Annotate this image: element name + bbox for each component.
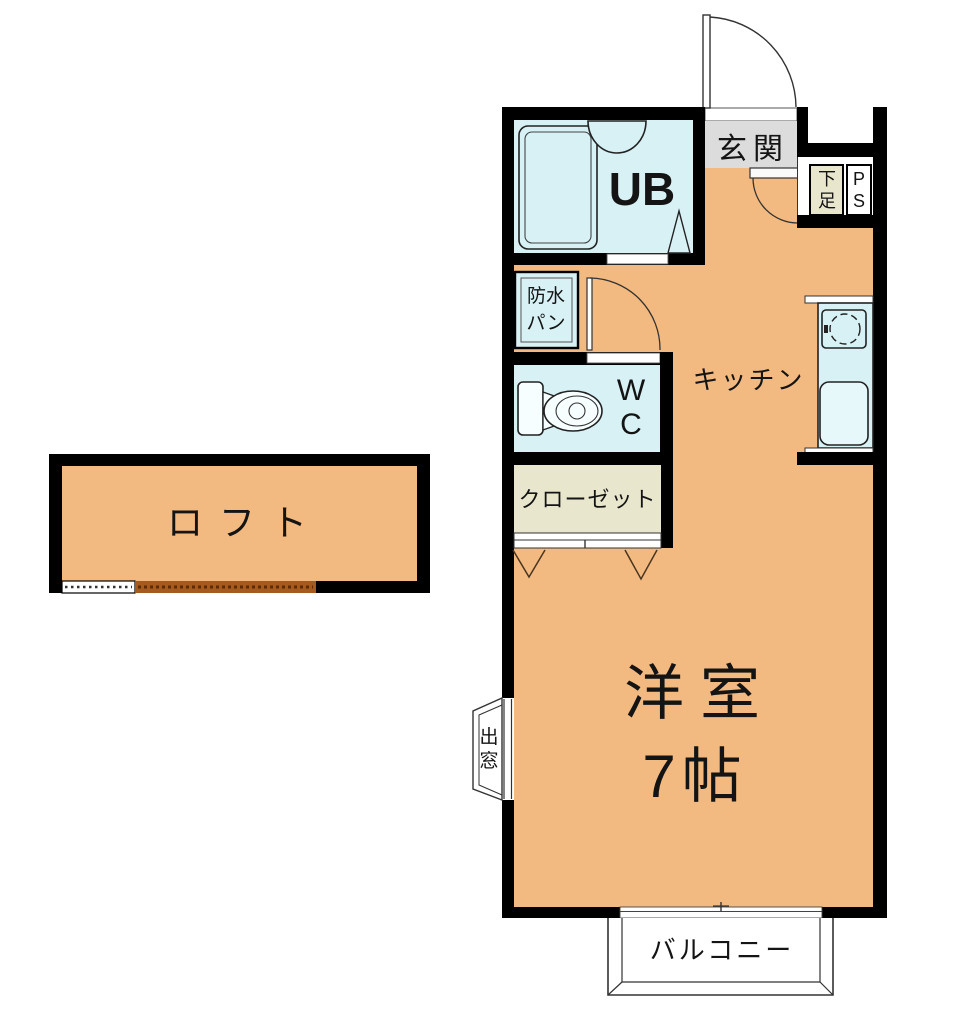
right-wall <box>873 107 887 918</box>
bath-door-threshold <box>607 254 668 264</box>
entrance-threshold <box>705 108 797 121</box>
entrance-door-swing-arc <box>710 17 796 107</box>
pipe-space-label: PS <box>851 167 867 213</box>
kitchen-counter-top-lip <box>805 296 873 303</box>
balcony-label: バルコニー <box>638 931 806 965</box>
bathtub <box>519 126 597 249</box>
toilet-door-threshold <box>587 353 660 363</box>
shoe-cabinet-label: 下足 <box>817 167 837 213</box>
western-room-size-label: 7帖 <box>597 735 787 807</box>
toilet-door-leaf <box>587 278 592 350</box>
toilet-bowl <box>544 391 602 431</box>
stove-knob <box>824 325 828 333</box>
kitchen-sink <box>820 382 868 445</box>
entrance-step <box>750 168 798 178</box>
loft-label: ロフト <box>117 494 357 546</box>
kitchen-stub-wall <box>797 452 887 465</box>
kitchen-label: キッチン <box>686 361 811 395</box>
toilet-tank <box>518 382 543 435</box>
entrance-door-leaf <box>703 15 710 108</box>
floor-plan: ロフト UB 玄関 下足 PS 防水パン WC キッチン クローゼット 洋室 7… <box>0 0 968 1024</box>
left-wall-lower <box>502 800 514 918</box>
alcove-bottom-wall <box>797 215 873 228</box>
unit-bath-label: UB <box>599 158 685 220</box>
bottom-wall-left <box>502 907 620 918</box>
top-wall <box>502 107 705 120</box>
western-room-label: 洋室 <box>597 650 787 726</box>
alcove-top-wall <box>808 143 873 157</box>
closet-label: クローゼット <box>516 483 659 513</box>
entrance-door <box>703 15 797 121</box>
left-wall-upper <box>502 107 514 698</box>
closet-right-wall <box>661 452 673 548</box>
closet-top-wall <box>502 452 673 465</box>
bay-window-label: 出窓 <box>478 725 500 775</box>
unit-bath-bottom-wall <box>502 253 705 265</box>
toilet-right-wall <box>660 352 673 452</box>
toilet-label: WC <box>607 373 655 443</box>
entrance-label: 玄関 <box>701 127 799 165</box>
waterproof-pan-label: 防水パン <box>522 282 570 338</box>
